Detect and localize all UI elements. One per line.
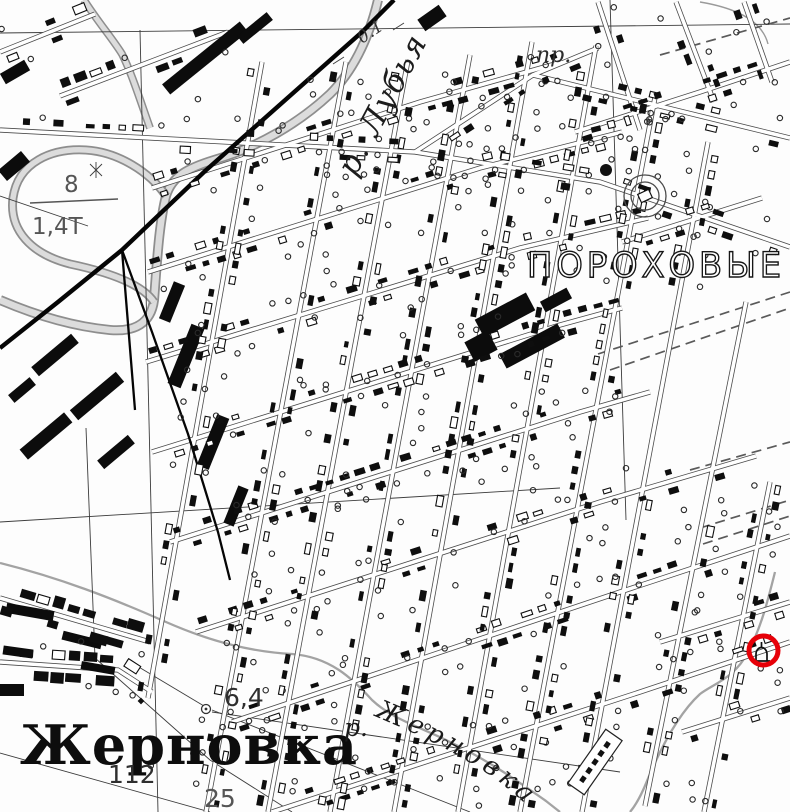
label-district-porokhovye: ПОРОХОВЫЕ [527, 246, 785, 286]
label-mark-25: 25 [204, 784, 236, 812]
map-canvas[interactable]: р. Лубья ПОРОХОВЫЕ пр. Жерновка р. Жерно… [0, 0, 790, 812]
label-river-zhernovka-prefix: р. [344, 713, 368, 742]
label-spot-height: 6,4 [224, 683, 264, 712]
label-village-zhernovka: Жерновка [20, 713, 358, 777]
topographic-map[interactable]: р. Лубья ПОРОХОВЫЕ пр. Жерновка р. Жерно… [0, 0, 790, 812]
label-prospect-abbr: пр. [536, 43, 571, 68]
bridge-fraction-line [30, 199, 118, 203]
label-bridge-width: 8 [64, 172, 79, 198]
label-bridge-load: 1,4Т [32, 214, 84, 240]
label-benchmark-112: 112 [108, 760, 156, 789]
